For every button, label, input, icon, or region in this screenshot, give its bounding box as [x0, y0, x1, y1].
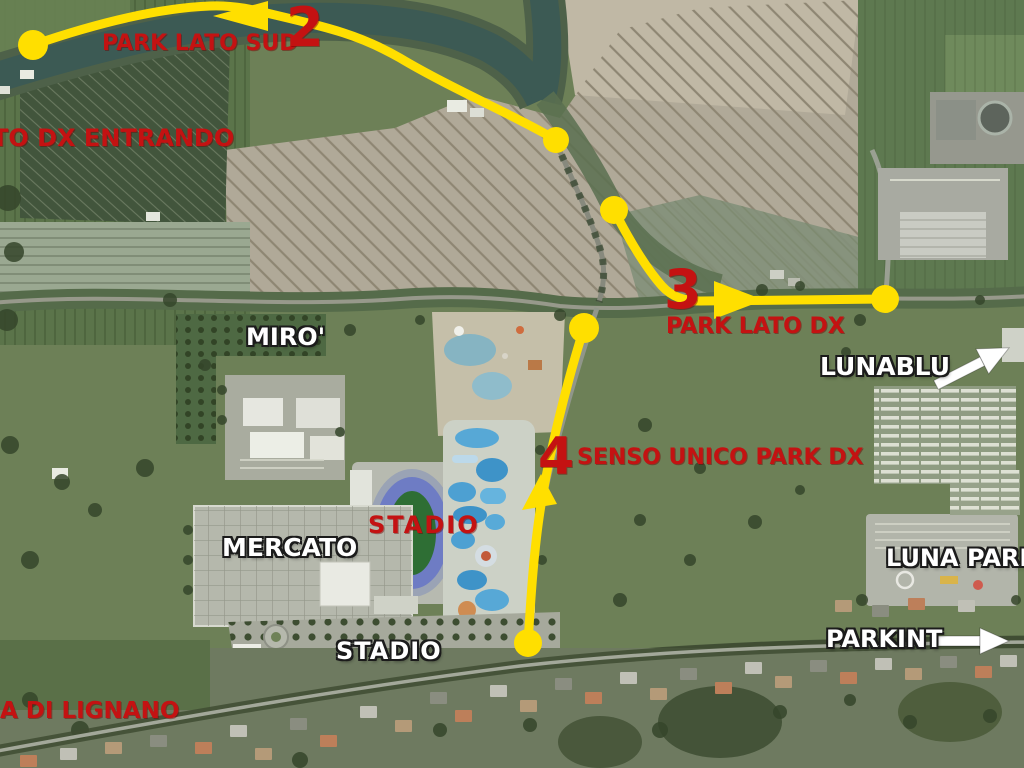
miro-complex — [225, 375, 345, 480]
label-lato-dx-entrando: TO DX ENTRANDO — [0, 125, 234, 151]
label-di-lignano: A DI LIGNANO — [0, 699, 179, 724]
waypoint-dot-park-sud — [18, 30, 48, 60]
label-route-3-number: 3 — [664, 263, 702, 317]
waypoint-dot-fields-junction — [600, 196, 628, 224]
label-senso-unico-park-dx: SENSO UNICO PARK DX — [577, 446, 863, 470]
label-route-4-number: 4 — [538, 431, 574, 483]
label-miro: MIRO' — [246, 324, 325, 350]
annotated-satellite-map: PARK LATO SUD 2 TO DX ENTRANDO 3 PARK LA… — [0, 0, 1024, 768]
label-stadio-stadium: STADIO — [368, 512, 480, 538]
label-park-lato-sud: PARK LATO SUD — [102, 32, 297, 56]
waypoint-dot-river-junction — [543, 127, 569, 153]
waypoint-dot-south-entry — [514, 629, 542, 657]
amusement-park — [432, 312, 565, 436]
label-mercato: MERCATO — [222, 534, 357, 562]
label-luna-park: LUNA PARK — [886, 545, 1024, 571]
waypoint-dot-park-dx — [871, 285, 899, 313]
label-lunablu: LUNABLU — [820, 353, 950, 381]
waypoint-dot-main-road — [569, 313, 599, 343]
label-route-2-number: 2 — [286, 1, 324, 55]
label-parkint: PARKINT — [826, 626, 942, 652]
label-park-lato-dx: PARK LATO DX — [666, 315, 845, 339]
label-stadio-parking: STADIO — [336, 638, 442, 664]
